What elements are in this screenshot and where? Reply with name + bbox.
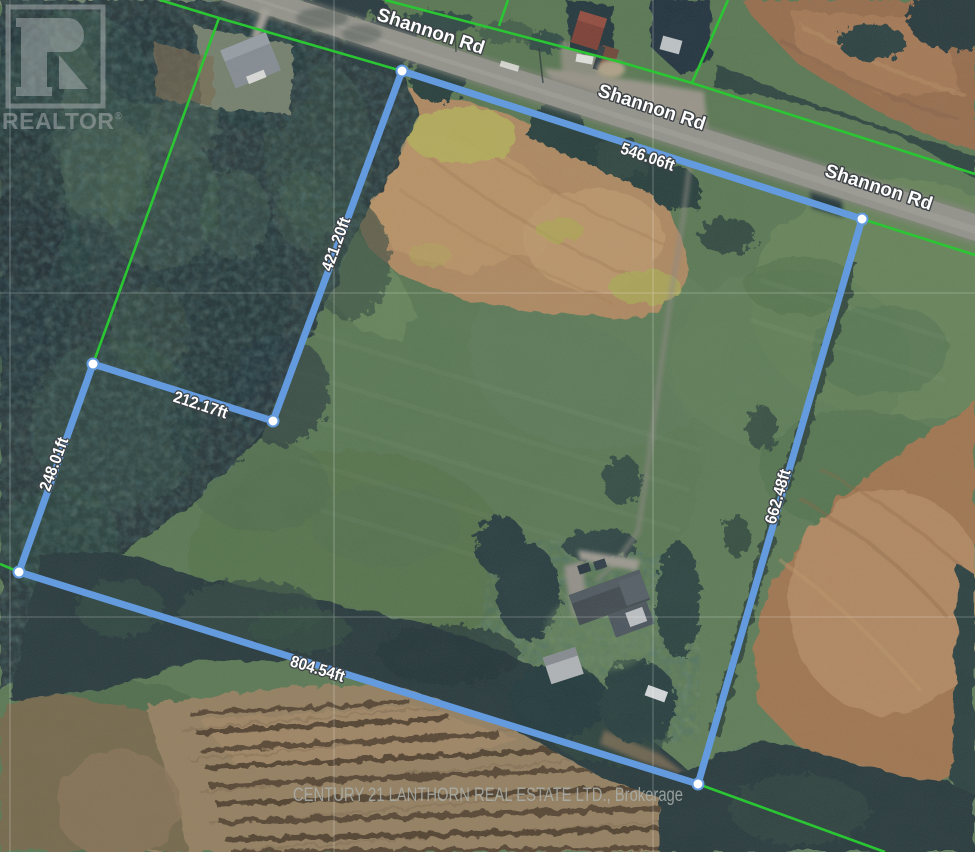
svg-text:REALTOR®: REALTOR® xyxy=(2,108,123,134)
svg-text:CENTURY 21 LANTHORN REAL ESTAT: CENTURY 21 LANTHORN REAL ESTATE LTD., Br… xyxy=(293,785,683,806)
